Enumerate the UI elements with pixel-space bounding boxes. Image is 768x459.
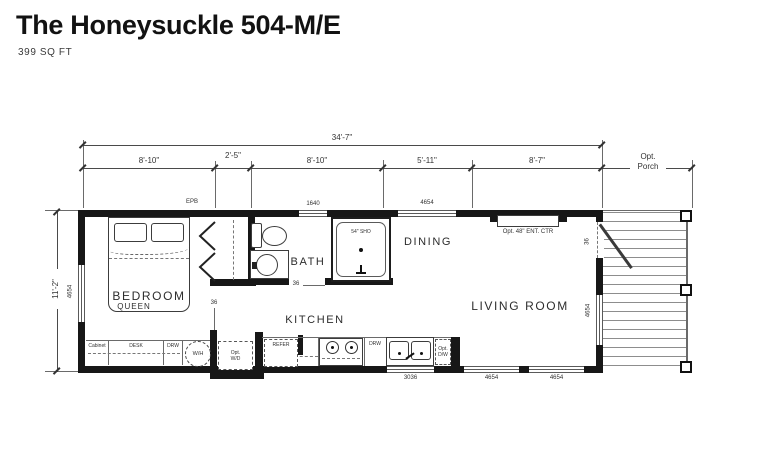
- porch-opt-text: Opt.: [630, 152, 666, 162]
- dining-label: DINING: [393, 236, 463, 248]
- sink-drain: [398, 352, 401, 355]
- counter-dash-line: [88, 353, 180, 354]
- refer-end-panel: [298, 335, 303, 355]
- wd-nook-bump: [210, 371, 264, 379]
- kitchen-label: KITCHEN: [270, 314, 360, 326]
- bath-door-label: 36: [289, 281, 303, 288]
- floor-plan-page: The Honeysuckle 504-M/E 399 SQ FT 34'-7"…: [0, 0, 768, 459]
- bedroom-counter-edge: [86, 340, 210, 341]
- shower-drain: [359, 248, 363, 252]
- bath-door-leader: [303, 285, 325, 286]
- kitchen-left-wall: [255, 332, 263, 373]
- wd-text: W/D: [219, 356, 252, 362]
- living-window-bottom-2-label: 4654: [529, 375, 584, 382]
- living-window-right-label: 4654: [586, 298, 593, 324]
- epb-label: EPB: [186, 199, 198, 206]
- extension-line: [45, 371, 78, 372]
- cabinet-label: Cabinet: [86, 343, 108, 349]
- range-front-line: [322, 358, 360, 359]
- living-room-label: LIVING ROOM: [460, 299, 580, 313]
- kitchen-window: [387, 366, 434, 373]
- bath-window-label: 1640: [299, 201, 327, 208]
- living-window-right: [596, 295, 603, 345]
- water-heater: W/H: [185, 341, 211, 367]
- dw-text: D/W: [436, 352, 450, 358]
- dishwasher-opt: Opt. D/W: [435, 339, 451, 365]
- square-footage-label: 399 SQ FT: [18, 47, 72, 58]
- porch-deck-boards: [603, 212, 687, 372]
- bedroom-door-label: 36: [207, 300, 221, 307]
- living-window-bottom-2: [529, 366, 584, 373]
- bedroom-label: BEDROOM: [99, 289, 199, 303]
- bed-blanket-line: [109, 258, 189, 259]
- drawer-label: DRW: [164, 343, 182, 349]
- toilet-tank: [251, 223, 262, 248]
- sink-drain: [420, 352, 423, 355]
- living-window-bottom-1-label: 4654: [464, 375, 519, 382]
- burner-center: [331, 346, 334, 349]
- porch-door-threshold: [597, 222, 598, 258]
- closet-bifold-doors-icon: [197, 220, 217, 282]
- dining-window: [398, 210, 456, 217]
- segment-label-bedroom: 8'-10": [119, 156, 179, 166]
- shower-faucet-base: [356, 272, 366, 274]
- bath-window: [299, 210, 327, 217]
- sink-basin: [411, 341, 431, 360]
- extension-line: [83, 140, 84, 208]
- bedroom-door-leader: [214, 308, 215, 330]
- bedroom-window-label: 4654: [68, 279, 75, 305]
- segment-label-living: 8'-7": [507, 156, 567, 166]
- page-title: The Honeysuckle 504-M/E: [16, 10, 341, 41]
- bath-faucet: [252, 262, 257, 269]
- segment-label-bath: 8'-10": [287, 156, 347, 166]
- water-heater-label: W/H: [193, 351, 204, 357]
- porch-dimension-label: Opt. Porch: [630, 152, 666, 172]
- living-window-bottom-1: [464, 366, 519, 373]
- porch-door-label: 36: [585, 235, 592, 249]
- extension-line: [45, 210, 78, 211]
- ent-center-label: Opt. 48" ENT. CTR: [488, 229, 568, 236]
- porch-post: [680, 284, 692, 296]
- kitchen-window-label: 3036: [387, 375, 434, 382]
- kitchen-drawer-label: DRW: [364, 341, 386, 347]
- bedroom-door-wall: [210, 330, 217, 373]
- overall-width-label: 34'-7": [302, 133, 382, 143]
- counter-divider: [182, 340, 183, 365]
- bath-label: BATH: [280, 256, 336, 268]
- desk-label: DESK: [112, 343, 160, 349]
- segment-label-closet: 2'-5": [203, 151, 263, 161]
- porch-post: [680, 361, 692, 373]
- toilet-bowl: [262, 226, 287, 246]
- burner-center: [350, 346, 353, 349]
- porch-name-text: Porch: [630, 162, 666, 172]
- washer-dryer-opt: Opt. W/D: [218, 341, 253, 370]
- bath-bottom-wall-left: [251, 278, 289, 285]
- segment-label-dining: 5'-11": [397, 156, 457, 166]
- height-dimension-label: 11'-2": [51, 269, 61, 309]
- bath-sink: [256, 254, 278, 276]
- closet-rod: [233, 220, 234, 280]
- ent-center-cabinet: [497, 215, 559, 227]
- range: [319, 338, 363, 366]
- shower-label: 54" SHO: [336, 229, 386, 235]
- porch-post: [680, 210, 692, 222]
- refrigerator-label: REFER: [264, 342, 298, 348]
- extension-line: [602, 140, 603, 208]
- dining-window-label: 4654: [398, 200, 456, 207]
- bed-fold-line: [109, 240, 189, 255]
- bed-type-label: QUEEN: [99, 302, 169, 311]
- overall-width-dimension-line: [83, 145, 603, 146]
- counter-end-wall: [451, 337, 460, 367]
- porch-top-edge: [603, 210, 692, 211]
- bedroom-window: [78, 265, 85, 322]
